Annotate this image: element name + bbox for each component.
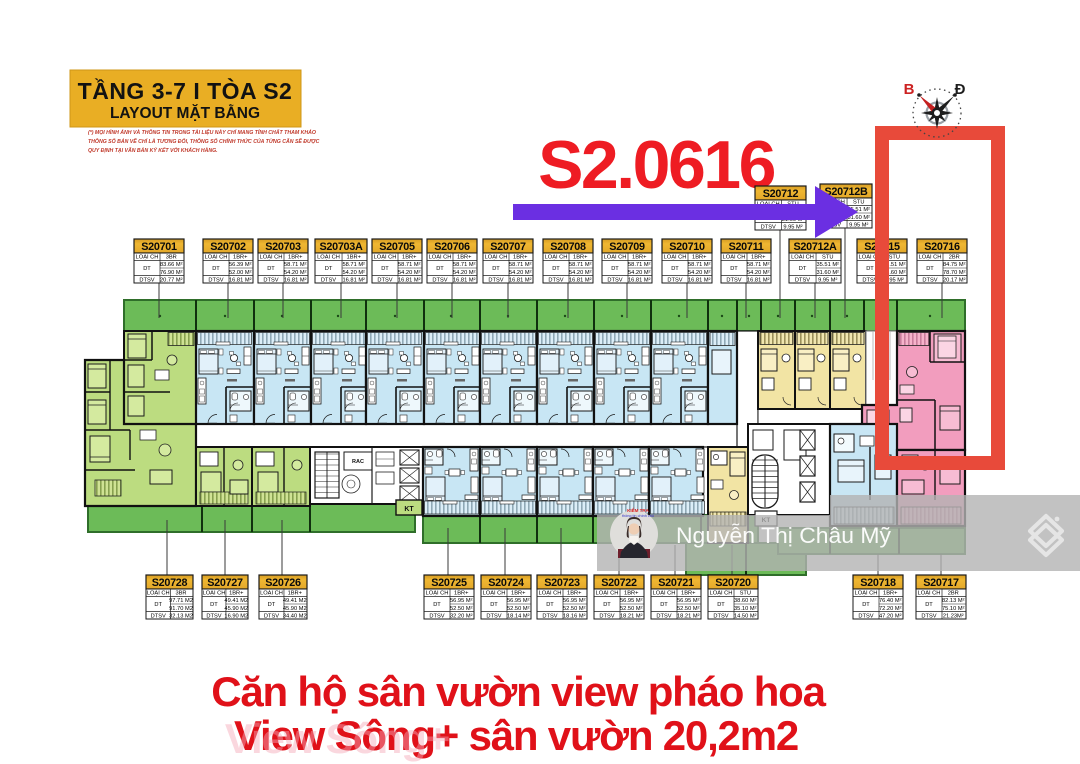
svg-text:54.20 M²: 54.20 M²	[628, 270, 651, 276]
svg-text:52.50 M²: 52.50 M²	[450, 606, 473, 612]
svg-text:DT: DT	[143, 266, 151, 272]
svg-text:DT: DT	[212, 266, 220, 272]
svg-text:LAYOUT MẶT BẰNG: LAYOUT MẶT BẰNG	[110, 104, 260, 122]
svg-text:58.71 M²: 58.71 M²	[747, 262, 770, 268]
svg-text:56.95 M²: 56.95 M²	[620, 598, 643, 604]
svg-text:LOẠI CH: LOẠI CH	[653, 591, 676, 597]
svg-text:54.20 M²: 54.20 M²	[453, 270, 476, 276]
svg-text:3BR: 3BR	[175, 591, 186, 597]
svg-text:DTSV: DTSV	[726, 278, 741, 284]
svg-text:DTSV: DTSV	[208, 278, 223, 284]
svg-text:B: B	[904, 81, 915, 98]
svg-text:72.20 M²: 72.20 M²	[879, 606, 902, 612]
svg-text:52.50 M²: 52.50 M²	[507, 606, 530, 612]
svg-text:16.81 M²: 16.81 M²	[509, 278, 532, 284]
svg-text:S20701: S20701	[141, 241, 177, 253]
svg-text:S20727: S20727	[207, 577, 243, 589]
svg-text:32.20 M²: 32.20 M²	[450, 614, 473, 620]
svg-text:DTSV: DTSV	[321, 278, 336, 284]
svg-text:9.95 M²: 9.95 M²	[818, 278, 837, 284]
svg-text:Nguyễn Thị Châu Mỹ: Nguyễn Thị Châu Mỹ	[676, 523, 892, 548]
svg-text:18.14 M²: 18.14 M²	[507, 614, 530, 620]
svg-text:DTSV: DTSV	[922, 278, 937, 284]
svg-text:DTSV: DTSV	[151, 614, 166, 620]
svg-text:49.41 M2: 49.41 M2	[224, 598, 248, 604]
svg-text:38.60 M²: 38.60 M²	[734, 598, 757, 604]
svg-text:34.40 M2: 34.40 M2	[283, 614, 307, 620]
svg-text:LOẠI CH: LOẠI CH	[485, 255, 508, 261]
svg-text:DTSV: DTSV	[264, 614, 279, 620]
svg-text:S20708: S20708	[550, 241, 586, 253]
svg-text:1BR+: 1BR+	[624, 591, 639, 597]
svg-text:LOẠI CH: LOẠI CH	[855, 591, 878, 597]
svg-text:LOẠI CH: LOẠI CH	[710, 591, 733, 597]
svg-text:58.71 M²: 58.71 M²	[628, 262, 651, 268]
svg-text:S20705: S20705	[379, 241, 415, 253]
svg-text:LOẠI CH: LOẠI CH	[919, 255, 942, 261]
svg-text:DT: DT	[717, 602, 725, 608]
svg-text:S20722: S20722	[601, 577, 637, 589]
svg-text:45.90 M2: 45.90 M2	[283, 606, 307, 612]
svg-text:84.75 M²: 84.75 M²	[943, 262, 966, 268]
svg-text:1BR+: 1BR+	[288, 255, 303, 261]
svg-text:52.50 M²: 52.50 M²	[563, 606, 586, 612]
svg-text:58.71 M²: 58.71 M²	[688, 262, 711, 268]
svg-text:DTSV: DTSV	[548, 278, 563, 284]
svg-text:(*) MỌI HÌNH ẢNH VÀ THÔNG TIN: (*) MỌI HÌNH ẢNH VÀ THÔNG TIN TRONG TÀI …	[88, 128, 316, 136]
svg-text:56.95 M²: 56.95 M²	[677, 598, 700, 604]
svg-text:LOẠI CH: LOẠI CH	[426, 591, 449, 597]
svg-text:LOẠI CH: LOẠI CH	[664, 255, 687, 261]
svg-text:DTSV: DTSV	[377, 278, 392, 284]
svg-text:54.20 M²: 54.20 M²	[569, 270, 592, 276]
svg-text:S20712: S20712	[763, 188, 799, 200]
svg-text:DT: DT	[492, 266, 500, 272]
svg-text:DTSV: DTSV	[486, 614, 501, 620]
svg-text:DTSV: DTSV	[667, 278, 682, 284]
svg-text:STU: STU	[822, 255, 833, 261]
svg-text:16.90 M2: 16.90 M2	[224, 614, 248, 620]
svg-text:58.71 M²: 58.71 M²	[284, 262, 307, 268]
svg-text:1BR+: 1BR+	[457, 255, 472, 261]
svg-text:View Sông+: View Sông+	[225, 715, 449, 762]
svg-text:LOẠI CH: LOẠI CH	[203, 591, 226, 597]
svg-text:S20716: S20716	[924, 241, 960, 253]
svg-text:56.95 M²: 56.95 M²	[450, 598, 473, 604]
svg-text:S20720: S20720	[715, 577, 751, 589]
svg-text:49.41 M2: 49.41 M2	[283, 598, 307, 604]
svg-text:1BR+: 1BR+	[883, 591, 898, 597]
svg-text:58.71 M²: 58.71 M²	[343, 262, 366, 268]
svg-text:S20718: S20718	[860, 577, 896, 589]
svg-text:1BR+: 1BR+	[632, 255, 647, 261]
svg-text:1BR+: 1BR+	[347, 255, 362, 261]
svg-text:18.21 M²: 18.21 M²	[620, 614, 643, 620]
svg-text:STU: STU	[889, 255, 900, 261]
svg-text:54.20 M²: 54.20 M²	[747, 270, 770, 276]
svg-text:54.20 M²: 54.20 M²	[509, 270, 532, 276]
svg-text:78.70 M²: 78.70 M²	[943, 270, 966, 276]
svg-text:LOẠI CH: LOẠI CH	[791, 255, 814, 261]
svg-text:DT: DT	[552, 266, 560, 272]
svg-text:DT: DT	[611, 266, 619, 272]
svg-text:DTSV: DTSV	[607, 278, 622, 284]
svg-text:76.40 M²: 76.40 M²	[879, 598, 902, 604]
svg-text:1BR+: 1BR+	[233, 255, 248, 261]
svg-text:58.71 M²: 58.71 M²	[398, 262, 421, 268]
svg-text:2BR: 2BR	[948, 591, 959, 597]
svg-text:LOẠI CH: LOẠI CH	[545, 255, 568, 261]
svg-text:Đ: Đ	[955, 81, 966, 98]
svg-text:thông tin chính chủ: thông tin chính chủ	[622, 514, 654, 518]
svg-text:S20702: S20702	[210, 241, 246, 253]
svg-text:DTSV: DTSV	[542, 614, 557, 620]
svg-text:1BR+: 1BR+	[692, 255, 707, 261]
svg-text:S20723: S20723	[544, 577, 580, 589]
svg-text:56.95 M²: 56.95 M²	[507, 598, 530, 604]
svg-text:DTSV: DTSV	[206, 614, 221, 620]
svg-text:TẦNG 3-7 I TÒA S2: TẦNG 3-7 I TÒA S2	[78, 77, 293, 104]
svg-text:LOẠI CH: LOẠI CH	[539, 591, 562, 597]
svg-text:58.71 M²: 58.71 M²	[569, 262, 592, 268]
svg-text:9.95 M²: 9.95 M²	[783, 225, 802, 231]
svg-text:S20703: S20703	[265, 241, 301, 253]
svg-text:S20726: S20726	[265, 577, 301, 589]
svg-text:DT: DT	[799, 266, 807, 272]
svg-text:DT: DT	[862, 602, 870, 608]
svg-text:S20710: S20710	[669, 241, 705, 253]
svg-text:DT: DT	[490, 602, 498, 608]
svg-text:DTSV: DTSV	[263, 278, 278, 284]
svg-text:LOẠI CH: LOẠI CH	[260, 591, 283, 597]
svg-text:S20711: S20711	[729, 241, 764, 253]
svg-text:97.71 M2: 97.71 M2	[169, 598, 193, 604]
svg-text:52.00 M²: 52.00 M²	[229, 270, 252, 276]
svg-text:54.20 M²: 54.20 M²	[398, 270, 421, 276]
svg-text:LOẠI CH: LOẠI CH	[317, 255, 340, 261]
svg-text:DT: DT	[546, 602, 554, 608]
svg-text:S20724: S20724	[488, 577, 524, 589]
svg-text:56.39 M²: 56.39 M²	[229, 262, 252, 268]
svg-text:20.77 M²: 20.77 M²	[160, 278, 183, 284]
svg-text:S20717: S20717	[923, 577, 959, 589]
svg-text:31.60 M²: 31.60 M²	[817, 270, 840, 276]
svg-text:76.90 M²: 76.90 M²	[160, 270, 183, 276]
svg-text:DT: DT	[866, 266, 874, 272]
svg-text:45.90 M2: 45.90 M2	[224, 606, 248, 612]
svg-text:LOẠI CH: LOẠI CH	[604, 255, 627, 261]
svg-text:DT: DT	[210, 602, 218, 608]
svg-text:52.50 M²: 52.50 M²	[620, 606, 643, 612]
svg-text:91.70 M2: 91.70 M2	[169, 606, 193, 612]
svg-text:16.81 M²: 16.81 M²	[229, 278, 252, 284]
svg-text:18.21 M²: 18.21 M²	[677, 614, 700, 620]
svg-text:DT: DT	[325, 266, 333, 272]
svg-text:S20721: S20721	[658, 577, 694, 589]
svg-text:35.51 M²: 35.51 M²	[817, 262, 840, 268]
svg-text:DTSV: DTSV	[432, 278, 447, 284]
svg-text:LOẠI CH: LOẠI CH	[723, 255, 746, 261]
svg-text:14.50 M²: 14.50 M²	[734, 614, 757, 620]
svg-text:16.81 M²: 16.81 M²	[688, 278, 711, 284]
svg-text:KT: KT	[404, 506, 414, 513]
svg-text:DT: DT	[671, 266, 679, 272]
svg-text:20.17 M²: 20.17 M²	[943, 278, 966, 284]
svg-text:DTSV: DTSV	[429, 614, 444, 620]
svg-text:16.81 M²: 16.81 M²	[747, 278, 770, 284]
svg-text:DT: DT	[436, 266, 444, 272]
svg-text:DT: DT	[603, 602, 611, 608]
svg-text:2BR: 2BR	[949, 255, 960, 261]
svg-text:16.81 M²: 16.81 M²	[569, 278, 592, 284]
svg-text:Căn hộ sân vườn view pháo hoa: Căn hộ sân vườn view pháo hoa	[211, 668, 826, 715]
svg-text:QUY ĐỊNH TẠI VĂN BẢN KÝ KẾT VỚ: QUY ĐỊNH TẠI VĂN BẢN KÝ KẾT VỚI KHÁCH HÀ…	[88, 146, 218, 154]
svg-text:S20712A: S20712A	[794, 241, 837, 253]
svg-text:LOẠI CH: LOẠI CH	[260, 255, 283, 261]
svg-text:DTSV: DTSV	[761, 225, 776, 231]
svg-text:LOẠI CH: LOẠI CH	[374, 255, 397, 261]
svg-text:DTSV: DTSV	[139, 278, 154, 284]
svg-text:35.10 M²: 35.10 M²	[734, 606, 757, 612]
svg-text:DTSV: DTSV	[921, 614, 936, 620]
svg-text:54.20 M²: 54.20 M²	[343, 270, 366, 276]
svg-text:DTSV: DTSV	[488, 278, 503, 284]
svg-text:9.95 M²: 9.95 M²	[849, 223, 868, 229]
svg-text:THÔNG SỐ BẢN VẼ CHỈ LÀ TƯƠNG Đ: THÔNG SỐ BẢN VẼ CHỈ LÀ TƯƠNG ĐỐI, THÔNG …	[88, 137, 320, 145]
svg-text:S20725: S20725	[431, 577, 467, 589]
svg-text:KIỂM TRA: KIỂM TRA	[627, 507, 649, 513]
svg-text:DT: DT	[268, 602, 276, 608]
svg-text:1BR+: 1BR+	[402, 255, 417, 261]
svg-text:1BR+: 1BR+	[511, 591, 526, 597]
svg-text:56.95 M²: 56.95 M²	[563, 598, 586, 604]
svg-text:DTSV: DTSV	[713, 614, 728, 620]
svg-text:16.81 M²: 16.81 M²	[398, 278, 421, 284]
svg-text:RAC: RAC	[352, 459, 364, 465]
svg-text:DT: DT	[267, 266, 275, 272]
svg-text:82.13 M²: 82.13 M²	[942, 598, 965, 604]
svg-text:16.81 M²: 16.81 M²	[453, 278, 476, 284]
svg-text:STU: STU	[853, 200, 864, 206]
svg-text:LOẠI CH: LOẠI CH	[136, 255, 159, 261]
svg-text:DTSV: DTSV	[858, 614, 873, 620]
svg-text:54.20 M²: 54.20 M²	[688, 270, 711, 276]
svg-text:75.10 M²: 75.10 M²	[942, 606, 965, 612]
svg-text:DT: DT	[660, 602, 668, 608]
svg-text:S2.0616: S2.0616	[538, 127, 775, 203]
svg-text:18.16 M²: 18.16 M²	[563, 614, 586, 620]
svg-text:DTSV: DTSV	[656, 614, 671, 620]
svg-text:LOẠI CH: LOẠI CH	[596, 591, 619, 597]
svg-text:16.81 M²: 16.81 M²	[628, 278, 651, 284]
svg-text:1BR+: 1BR+	[229, 591, 244, 597]
svg-text:32.13 M2: 32.13 M2	[169, 614, 193, 620]
svg-text:LOẠI CH: LOẠI CH	[147, 591, 170, 597]
svg-text:47.20 M²: 47.20 M²	[879, 614, 902, 620]
svg-text:1BR+: 1BR+	[454, 591, 469, 597]
svg-text:LOẠI CH: LOẠI CH	[205, 255, 228, 261]
svg-text:16.81 M²: 16.81 M²	[343, 278, 366, 284]
svg-text:DT: DT	[730, 266, 738, 272]
svg-text:1BR+: 1BR+	[573, 255, 588, 261]
svg-text:1BR+: 1BR+	[567, 591, 582, 597]
svg-text:1BR+: 1BR+	[513, 255, 528, 261]
svg-text:STU: STU	[740, 591, 751, 597]
svg-text:DTSV: DTSV	[795, 278, 810, 284]
svg-text:DT: DT	[154, 602, 162, 608]
svg-text:S20703A: S20703A	[320, 241, 363, 253]
svg-text:LOẠI CH: LOẠI CH	[918, 591, 941, 597]
svg-text:1BR+: 1BR+	[288, 591, 303, 597]
svg-text:54.20 M²: 54.20 M²	[284, 270, 307, 276]
svg-text:1BR+: 1BR+	[751, 255, 766, 261]
svg-text:DT: DT	[433, 602, 441, 608]
svg-text:LOẠI CH: LOẠI CH	[429, 255, 452, 261]
svg-text:3BR: 3BR	[166, 255, 177, 261]
svg-text:S20728: S20728	[152, 577, 188, 589]
svg-text:DTSV: DTSV	[599, 614, 614, 620]
svg-text:S20707: S20707	[490, 241, 526, 253]
svg-text:52.50 M²: 52.50 M²	[677, 606, 700, 612]
svg-text:21.23M²: 21.23M²	[943, 614, 964, 620]
svg-text:S20709: S20709	[609, 241, 645, 253]
svg-text:DT: DT	[925, 602, 933, 608]
svg-text:DT: DT	[381, 266, 389, 272]
svg-text:83.66 M²: 83.66 M²	[160, 262, 183, 268]
svg-text:S20706: S20706	[434, 241, 470, 253]
svg-text:1BR+: 1BR+	[681, 591, 696, 597]
svg-text:DT: DT	[926, 266, 934, 272]
svg-text:LOẠI CH: LOẠI CH	[483, 591, 506, 597]
svg-text:58.71 M²: 58.71 M²	[509, 262, 532, 268]
svg-text:58.71 M²: 58.71 M²	[453, 262, 476, 268]
svg-text:16.81 M²: 16.81 M²	[284, 278, 307, 284]
